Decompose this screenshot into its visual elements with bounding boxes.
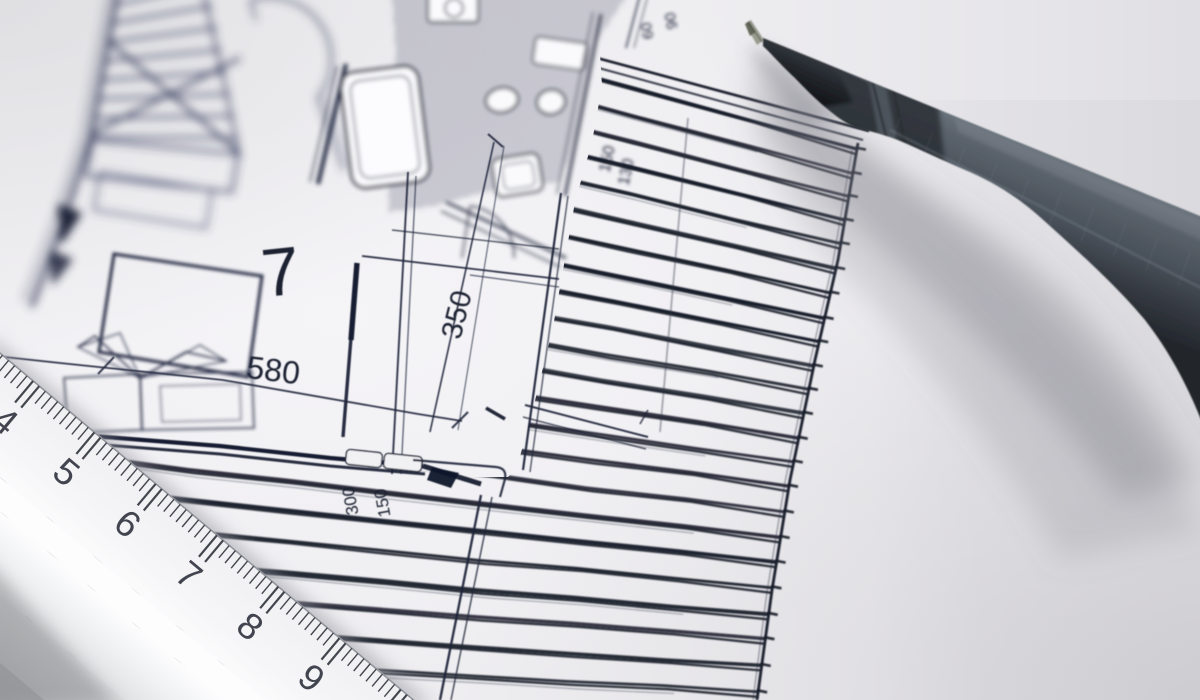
svg-text:90: 90	[662, 11, 682, 30]
svg-text:7: 7	[258, 232, 304, 312]
